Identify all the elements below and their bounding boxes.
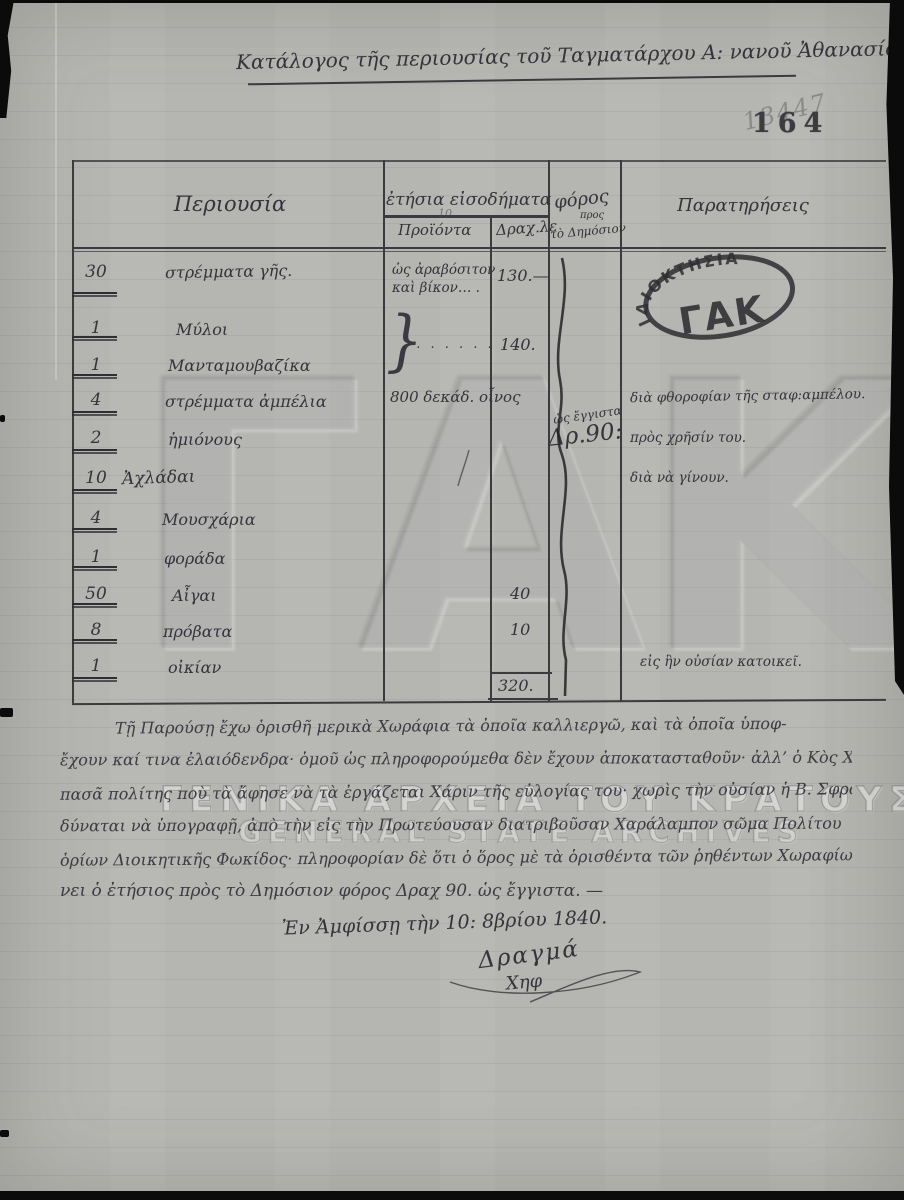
handdrawn-wavy-line xyxy=(0,0,904,1200)
body-line: νει ὁ ἐτήσιος πρὸς τὸ Δημόσιον φόρος Δρα… xyxy=(60,881,620,901)
scan-edge-bottom xyxy=(0,1191,904,1200)
body-line: δύναται νὰ ὑπογραφῇ, ἀπὸ τὴν εἰς τὴν Πρω… xyxy=(60,814,852,836)
scan-edge-top xyxy=(0,0,904,3)
body-line: ἔχουν καί τινα ἐλαιόδενδρα· ὁμοῦ ὡς πληρ… xyxy=(60,748,852,770)
scan-edge-left-dot xyxy=(0,415,5,422)
signature-flourish xyxy=(440,950,660,1010)
scan-edge-left-dash1 xyxy=(0,708,13,717)
document-scan: ΓΑΚ ΓΕΝΙΚΑ ΑΡΧΕΙΑ ΤΟΥ ΚΡΑΤΟΥΣ GENERAL ST… xyxy=(0,0,904,1200)
scan-edge-left-dash2 xyxy=(0,1130,9,1137)
